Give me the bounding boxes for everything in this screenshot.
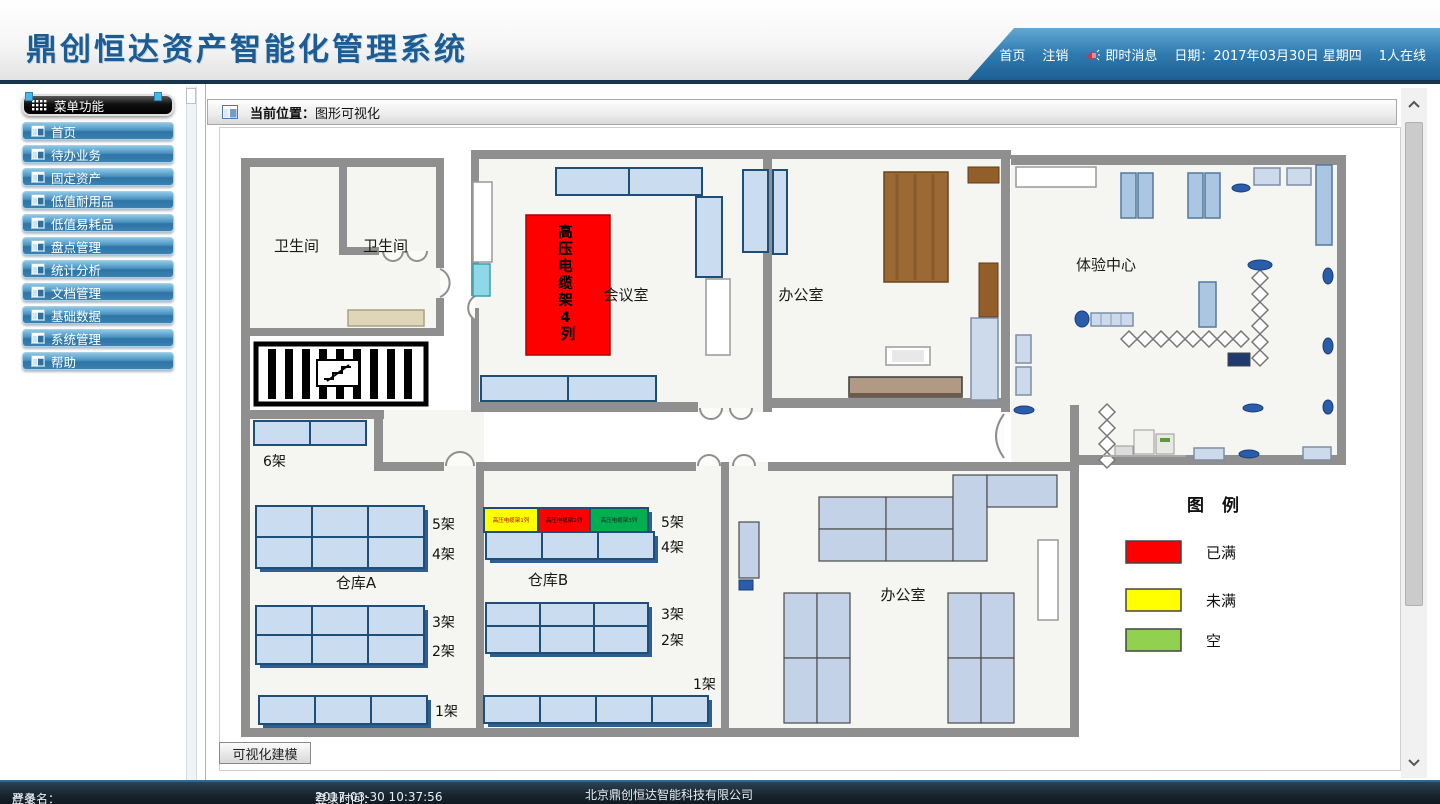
restroom-furniture <box>348 310 424 326</box>
sidebar-splitter[interactable] <box>186 86 197 780</box>
pin-icon <box>154 92 162 101</box>
scrollbar-thumb[interactable] <box>1405 122 1423 606</box>
legend-swatch-notfull <box>1126 589 1181 611</box>
window-icon <box>31 263 45 275</box>
svg-text:4架: 4架 <box>661 540 684 556</box>
floorplan-visualization[interactable]: 卫生间 卫生间 高 压 电 缆 <box>241 148 1346 738</box>
legend-label-full: 已满 <box>1206 544 1236 562</box>
chevron-up-icon <box>1407 100 1421 109</box>
grid-icon <box>32 99 47 111</box>
svg-text:5架: 5架 <box>661 515 684 531</box>
sidebar-item-durables[interactable]: 低值耐用品 <box>22 191 174 209</box>
breadcrumb-label: 当前位置： <box>250 107 315 122</box>
window-icon <box>31 148 45 160</box>
svg-text:1架: 1架 <box>693 677 716 693</box>
room-label-office-top: 办公室 <box>778 286 823 304</box>
app-window: 鼎创恒达资产智能化管理系统 首页 注销 即时消息 日期：2017年03月30日 … <box>0 0 1440 804</box>
legend-swatch-empty <box>1126 629 1181 651</box>
room-label-restroom2: 卫生间 <box>363 237 408 255</box>
legend-label-notfull: 未满 <box>1206 592 1236 610</box>
window-icon <box>31 194 45 206</box>
sidebar-item-fixed-assets[interactable]: 固定资产 <box>22 168 174 186</box>
chevron-down-icon <box>1407 758 1421 767</box>
window-icon <box>31 286 45 298</box>
nav-home[interactable]: 首页 <box>999 45 1025 64</box>
vertical-scrollbar[interactable] <box>1401 88 1427 778</box>
scroll-down-button[interactable] <box>1401 750 1427 774</box>
sidebar-item-statistics[interactable]: 统计分析 <box>22 260 174 278</box>
online-count: 1人在线 <box>1379 45 1426 64</box>
sidebar: 菜单功能 首页 待办业务 固定资产 低值耐用品 低值易耗品 盘点管理 统计分析 … <box>0 84 205 780</box>
status-bar: 登录名：严冬 登录时间： 2017-03-30 10:37:56 北京鼎创恒达智… <box>0 780 1440 804</box>
breadcrumb: 当前位置：图形可视化 <box>207 99 1397 125</box>
main-content: 当前位置：图形可视化 <box>205 84 1427 780</box>
date-display: 日期：2017年03月30日 星期四 <box>1174 45 1361 64</box>
window-icon <box>31 309 45 321</box>
sidebar-item-inventory[interactable]: 盘点管理 <box>22 237 174 255</box>
header: 鼎创恒达资产智能化管理系统 首页 注销 即时消息 日期：2017年03月30日 … <box>0 0 1440 84</box>
window-icon <box>31 355 45 367</box>
room-label-experience: 体验中心 <box>1076 256 1136 274</box>
svg-text:2架: 2架 <box>661 633 684 649</box>
sidebar-item-documents[interactable]: 文档管理 <box>22 283 174 301</box>
splitter-handle[interactable] <box>186 88 196 104</box>
menu-header-label: 菜单功能 <box>54 96 104 115</box>
company-name: 北京鼎创恒达智能科技有限公司 <box>585 786 753 803</box>
scroll-up-button[interactable] <box>1401 92 1427 116</box>
nav-messages-label: 即时消息 <box>1105 45 1157 64</box>
window-icon <box>31 332 45 344</box>
sidebar-item-consumables[interactable]: 低值易耗品 <box>22 214 174 232</box>
menu-header[interactable]: 菜单功能 <box>22 94 174 116</box>
sidebar-item-help[interactable]: 帮助 <box>22 352 174 370</box>
legend-label-empty: 空 <box>1206 632 1221 650</box>
megaphone-icon <box>1085 48 1100 61</box>
hv-rack-3-label: 高压电缆架3列 <box>601 516 638 524</box>
window-icon <box>31 240 45 252</box>
nav-messages[interactable]: 即时消息 <box>1085 45 1157 64</box>
sidebar-item-system[interactable]: 系统管理 <box>22 329 174 347</box>
visual-modeling-button[interactable]: 可视化建模 <box>219 742 311 764</box>
legend-title: 图 例 <box>1187 495 1245 516</box>
room-label-office-bottom: 办公室 <box>880 586 925 604</box>
svg-text:3架: 3架 <box>661 607 684 623</box>
svg-text:3架: 3架 <box>432 615 455 631</box>
svg-text:1架: 1架 <box>435 704 458 720</box>
page-title: 鼎创恒达资产智能化管理系统 <box>26 24 468 69</box>
window-icon <box>31 217 45 229</box>
room-label-warehouse-a: 仓库A <box>336 574 377 592</box>
pin-icon <box>25 92 33 101</box>
window-icon <box>31 171 45 183</box>
breadcrumb-value: 图形可视化 <box>315 107 380 122</box>
stairs <box>256 344 426 404</box>
svg-text:4架: 4架 <box>432 547 455 563</box>
hv-rack-2-label: 高压电缆架2列 <box>546 516 583 524</box>
hv-rack-1-label: 高压电缆架1列 <box>493 516 530 524</box>
room-label-restroom1: 卫生间 <box>274 237 319 255</box>
svg-text:2架: 2架 <box>432 644 455 660</box>
top-nav: 首页 注销 即时消息 日期：2017年03月30日 星期四 1人在线 <box>968 28 1440 80</box>
sidebar-item-home[interactable]: 首页 <box>22 122 174 140</box>
svg-text:5架: 5架 <box>432 517 455 533</box>
sidebar-item-base-data[interactable]: 基础数据 <box>22 306 174 324</box>
svg-text:6架: 6架 <box>263 454 286 470</box>
sidebar-item-todo[interactable]: 待办业务 <box>22 145 174 163</box>
room-label-warehouse-b: 仓库B <box>528 571 568 589</box>
legend-swatch-full <box>1126 541 1181 563</box>
hv-rack-4[interactable]: 高 压 电 缆 架 4 列 <box>526 215 610 355</box>
legend: 图 例 已满 未满 空 <box>1126 495 1245 651</box>
room-label-meeting: 会议室 <box>603 286 648 304</box>
nav-logout[interactable]: 注销 <box>1042 45 1068 64</box>
window-icon <box>222 105 238 119</box>
window-icon <box>31 125 45 137</box>
